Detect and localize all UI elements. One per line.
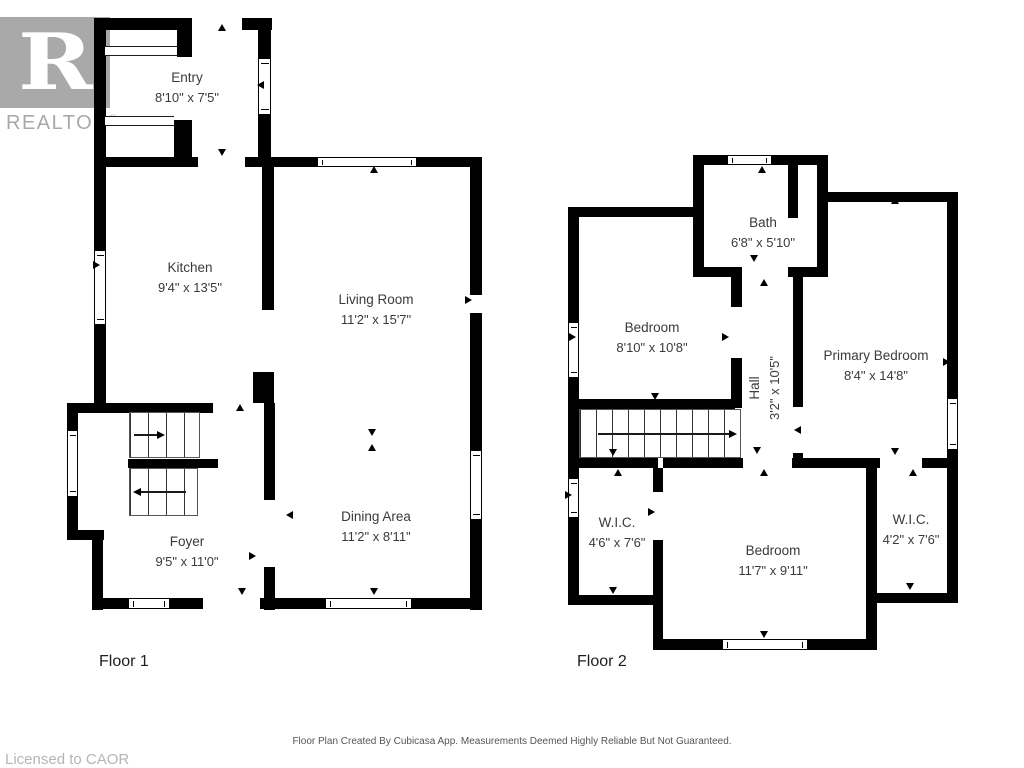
door-direction-marker-icon bbox=[609, 449, 617, 456]
room-dims: 11'2" x 8'11" bbox=[341, 529, 411, 545]
window-pane bbox=[322, 160, 412, 165]
wall bbox=[793, 273, 803, 407]
room-label-wic-left: W.I.C. 4'6" x 7'6" bbox=[589, 515, 646, 551]
stair-direction-arrow-icon bbox=[729, 430, 737, 438]
window bbox=[947, 398, 958, 450]
door-direction-marker-icon bbox=[93, 261, 100, 269]
door-direction-marker-icon bbox=[257, 81, 264, 89]
door-direction-marker-icon bbox=[750, 255, 758, 262]
wall bbox=[94, 325, 106, 403]
wall bbox=[470, 520, 482, 610]
wall bbox=[95, 18, 192, 30]
wall bbox=[788, 165, 798, 218]
door-direction-marker-icon bbox=[370, 588, 378, 595]
window-pane bbox=[70, 435, 76, 492]
wall bbox=[67, 497, 78, 530]
wall bbox=[258, 18, 271, 58]
wall bbox=[663, 458, 743, 468]
door-direction-marker-icon bbox=[286, 511, 293, 519]
window bbox=[722, 639, 808, 650]
room-dims: 8'10" x 7'5" bbox=[155, 90, 219, 106]
door-direction-marker-icon bbox=[794, 426, 801, 434]
wall bbox=[170, 598, 203, 609]
room-label-primary-bedroom: Primary Bedroom 8'4" x 14'8" bbox=[823, 348, 928, 384]
room-label-foyer: Foyer 9'5" x 11'0" bbox=[155, 534, 218, 570]
wall bbox=[820, 192, 958, 202]
room-name: Dining Area bbox=[341, 509, 411, 526]
door-direction-marker-icon bbox=[909, 469, 917, 476]
door-direction-marker-icon bbox=[891, 197, 899, 204]
sliding-door bbox=[105, 46, 177, 56]
wall bbox=[568, 595, 658, 605]
window bbox=[317, 157, 417, 167]
wall bbox=[470, 157, 482, 295]
room-dims: 4'6" x 7'6" bbox=[589, 535, 646, 551]
wall bbox=[568, 207, 579, 322]
room-name: Primary Bedroom bbox=[823, 348, 928, 365]
door-direction-marker-icon bbox=[614, 469, 622, 476]
floor2-label: Floor 2 bbox=[577, 653, 627, 671]
stair-direction-line bbox=[140, 491, 186, 493]
wall bbox=[262, 167, 274, 310]
wall bbox=[947, 192, 958, 398]
room-name: Kitchen bbox=[158, 260, 222, 277]
window bbox=[727, 155, 772, 165]
wall bbox=[568, 399, 735, 409]
wall bbox=[105, 157, 198, 167]
window-pane bbox=[727, 642, 803, 648]
room-label-bedroom-lower: Bedroom 11'7" x 9'11" bbox=[738, 543, 807, 579]
window bbox=[470, 450, 482, 520]
stair-direction-line bbox=[134, 434, 158, 436]
door-direction-marker-icon bbox=[651, 393, 659, 400]
window-pane bbox=[732, 158, 767, 163]
stair-direction-arrow-icon bbox=[133, 488, 141, 496]
wall bbox=[653, 468, 663, 492]
door-direction-marker-icon bbox=[722, 333, 729, 341]
wall bbox=[568, 207, 704, 217]
window-pane bbox=[330, 601, 407, 607]
room-label-dining-area: Dining Area 11'2" x 8'11" bbox=[341, 509, 411, 545]
door-direction-marker-icon bbox=[760, 631, 768, 638]
room-dims: 4'2" x 7'6" bbox=[883, 532, 940, 548]
room-name: Entry bbox=[155, 70, 219, 87]
wall bbox=[264, 403, 275, 500]
window bbox=[67, 430, 78, 497]
door-direction-marker-icon bbox=[465, 296, 472, 304]
room-name: Foyer bbox=[155, 534, 218, 551]
door-direction-marker-icon bbox=[569, 333, 576, 341]
sliding-door bbox=[105, 116, 174, 126]
wall bbox=[817, 155, 828, 273]
room-name: Bath bbox=[731, 215, 795, 232]
wall bbox=[731, 267, 742, 307]
stair-direction-line bbox=[598, 433, 730, 435]
room-label-kitchen: Kitchen 9'4" x 13'5" bbox=[158, 260, 222, 296]
door-direction-marker-icon bbox=[565, 491, 572, 499]
door-direction-marker-icon bbox=[891, 448, 899, 455]
room-label-bath: Bath 6'8" x 5'10" bbox=[731, 215, 795, 251]
door-direction-marker-icon bbox=[370, 166, 378, 173]
window-pane bbox=[473, 455, 480, 515]
wall bbox=[947, 450, 958, 603]
wall bbox=[568, 518, 579, 605]
door-direction-marker-icon bbox=[760, 279, 768, 286]
room-name: Bedroom bbox=[738, 543, 807, 560]
room-dims: 8'4" x 14'8" bbox=[823, 368, 928, 384]
door-direction-marker-icon bbox=[943, 358, 950, 366]
door-direction-marker-icon bbox=[609, 587, 617, 594]
door-direction-marker-icon bbox=[906, 583, 914, 590]
floor-plan-page: R REALTOR® Entry 8'10" x 7'5" Kitchen 9'… bbox=[0, 0, 1024, 768]
room-dims: 3'2" x 10'5" bbox=[767, 356, 783, 420]
door-direction-marker-icon bbox=[368, 429, 376, 436]
door-direction-marker-icon bbox=[238, 588, 246, 595]
window bbox=[325, 598, 412, 609]
wall bbox=[128, 459, 218, 468]
door-direction-marker-icon bbox=[236, 404, 244, 411]
window bbox=[568, 322, 579, 378]
wall bbox=[653, 639, 722, 650]
window-pane bbox=[950, 403, 956, 445]
stair-direction-arrow-icon bbox=[157, 431, 165, 439]
wall bbox=[866, 458, 877, 650]
door-direction-marker-icon bbox=[368, 444, 376, 451]
room-name: W.I.C. bbox=[883, 512, 940, 529]
room-label-wic-right: W.I.C. 4'2" x 7'6" bbox=[883, 512, 940, 548]
wall bbox=[260, 598, 325, 609]
room-dims: 9'4" x 13'5" bbox=[158, 280, 222, 296]
wall bbox=[470, 313, 482, 450]
wall bbox=[866, 593, 958, 603]
room-label-entry: Entry 8'10" x 7'5" bbox=[155, 70, 219, 106]
floor1-label: Floor 1 bbox=[99, 653, 149, 671]
window-pane bbox=[133, 601, 165, 607]
room-label-hall: Hall 3'2" x 10'5" bbox=[747, 356, 783, 420]
room-label-bedroom-upper: Bedroom 8'10" x 10'8" bbox=[616, 320, 687, 356]
wall bbox=[92, 598, 128, 609]
window bbox=[128, 598, 170, 609]
door-direction-marker-icon bbox=[218, 149, 226, 156]
door-direction-marker-icon bbox=[753, 447, 761, 454]
door-direction-marker-icon bbox=[648, 508, 655, 516]
door-direction-marker-icon bbox=[760, 469, 768, 476]
disclaimer-text: Floor Plan Created By Cubicasa App. Meas… bbox=[0, 736, 1024, 747]
room-name: W.I.C. bbox=[589, 515, 646, 532]
room-name: Bedroom bbox=[616, 320, 687, 337]
license-text: Licensed to CAOR bbox=[5, 751, 129, 768]
wall bbox=[177, 30, 192, 57]
wall bbox=[245, 157, 317, 167]
door-direction-marker-icon bbox=[218, 24, 226, 31]
room-dims: 6'8" x 5'10" bbox=[731, 235, 795, 251]
door-direction-marker-icon bbox=[249, 552, 256, 560]
room-dims: 11'7" x 9'11" bbox=[738, 563, 807, 579]
room-name: Living Room bbox=[338, 292, 413, 309]
door-direction-marker-icon bbox=[758, 166, 766, 173]
wall bbox=[922, 458, 958, 468]
room-name: Hall bbox=[747, 356, 764, 420]
door-direction-marker-icon bbox=[93, 551, 100, 559]
room-label-living-room: Living Room 11'2" x 15'7" bbox=[338, 292, 413, 328]
room-dims: 11'2" x 15'7" bbox=[338, 312, 413, 328]
door-direction-marker-icon bbox=[97, 80, 104, 88]
wall bbox=[253, 372, 274, 403]
wall bbox=[568, 458, 658, 468]
room-dims: 9'5" x 11'0" bbox=[155, 554, 218, 570]
wall bbox=[808, 639, 877, 650]
wall bbox=[67, 403, 78, 430]
room-dims: 8'10" x 10'8" bbox=[616, 340, 687, 356]
